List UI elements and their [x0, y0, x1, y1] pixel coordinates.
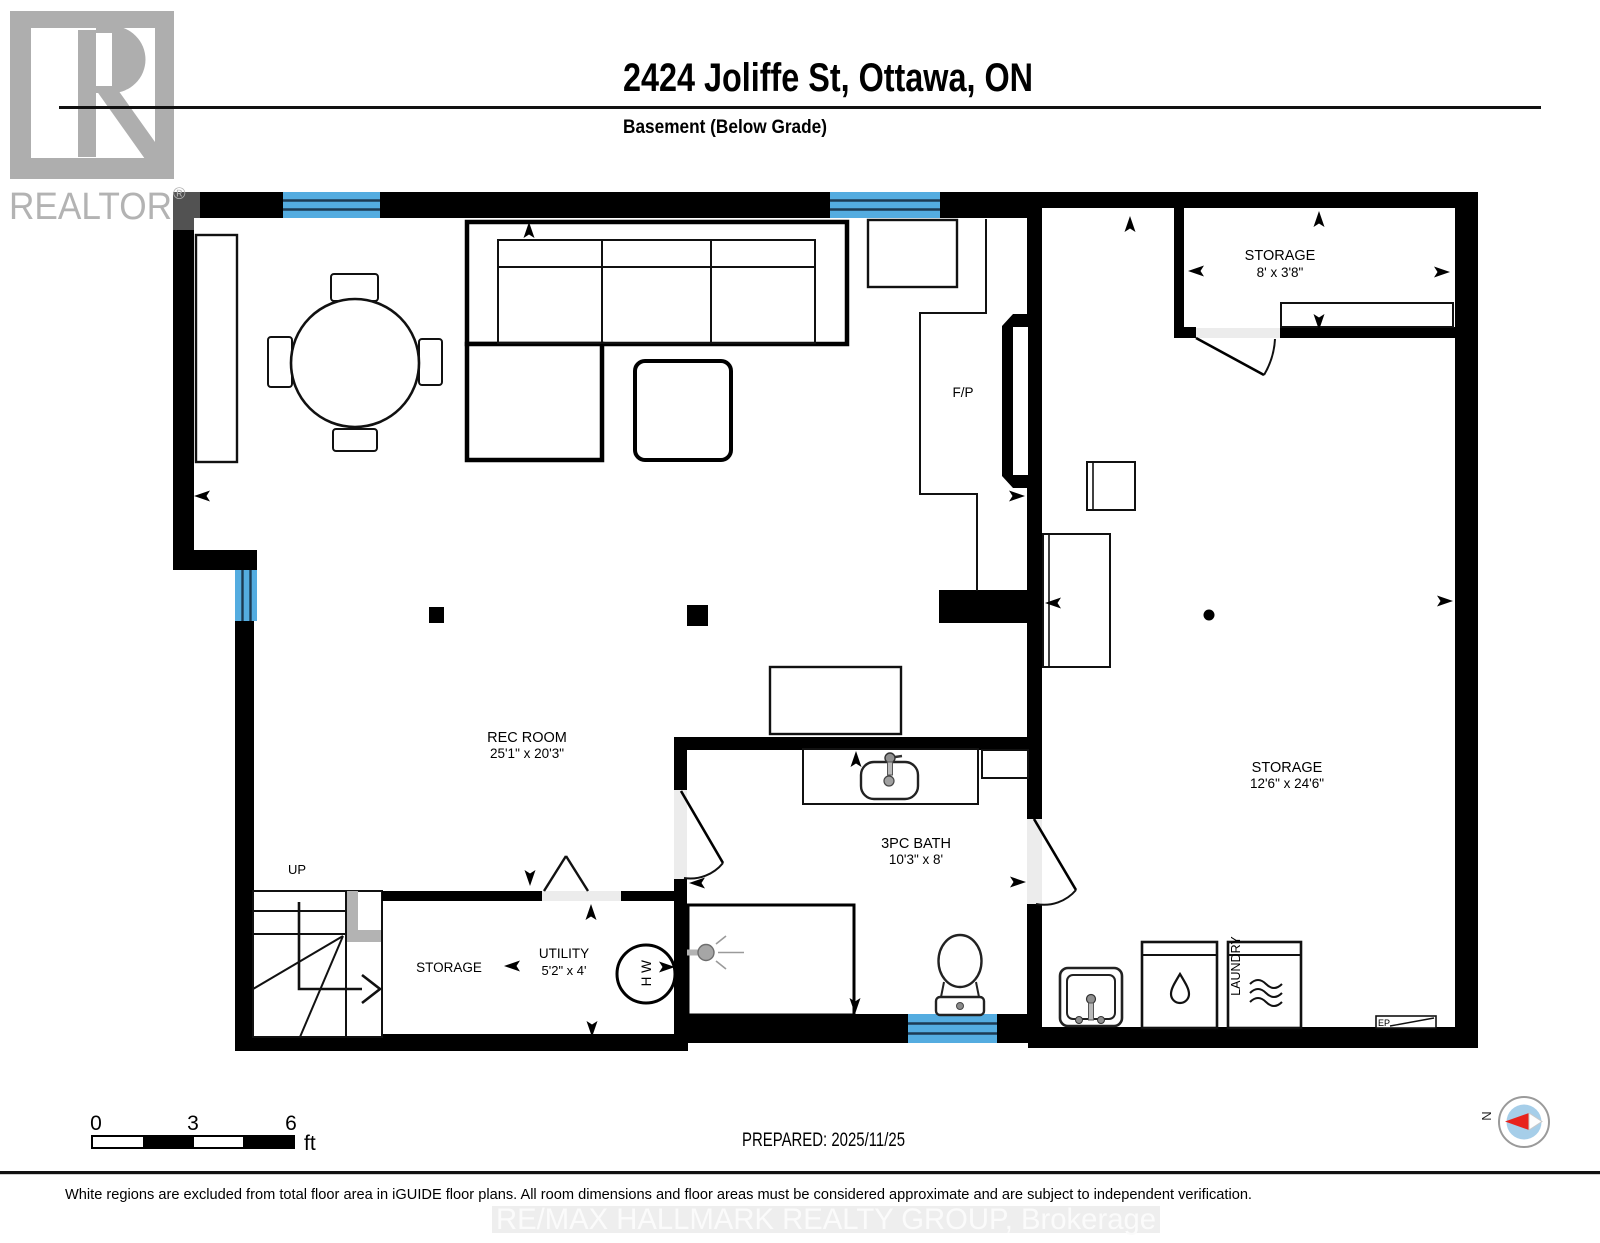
svg-text:H: H [639, 977, 654, 987]
svg-text:REC ROOM: REC ROOM [487, 730, 567, 746]
svg-text:ft: ft [304, 1132, 316, 1155]
svg-text:0: 0 [90, 1112, 102, 1135]
svg-text:LAUNDRY: LAUNDRY [1229, 936, 1243, 996]
svg-text:EP: EP [1378, 1018, 1390, 1028]
svg-text:3: 3 [187, 1112, 199, 1135]
svg-text:RE/MAX HALLMARK REALTY GROUP,: RE/MAX HALLMARK REALTY GROUP, Brokerage [496, 1203, 1156, 1236]
svg-text:W: W [639, 960, 654, 973]
svg-text:STORAGE: STORAGE [1252, 760, 1323, 776]
svg-text:REALTOR: REALTOR [9, 186, 172, 228]
svg-text:6: 6 [285, 1112, 297, 1135]
svg-text:N: N [1479, 1111, 1494, 1120]
svg-text:UTILITY: UTILITY [539, 946, 589, 961]
svg-text:12'6" x 24'6": 12'6" x 24'6" [1250, 776, 1324, 791]
svg-text:25'1" x 20'3": 25'1" x 20'3" [490, 746, 564, 761]
svg-text:5'2" x 4': 5'2" x 4' [542, 963, 587, 978]
svg-text:10'3" x 8': 10'3" x 8' [889, 852, 943, 867]
svg-text:STORAGE: STORAGE [416, 960, 482, 975]
svg-text:2424 Joliffe St, Ottawa, ON: 2424 Joliffe St, Ottawa, ON [623, 56, 1033, 100]
svg-text:PREPARED: 2025/11/25: PREPARED: 2025/11/25 [742, 1130, 905, 1151]
svg-text:®: ® [173, 184, 186, 203]
svg-text:F/P: F/P [952, 385, 973, 400]
svg-text:STORAGE: STORAGE [1245, 248, 1316, 264]
svg-text:White regions are excluded fro: White regions are excluded from total fl… [65, 1186, 1252, 1203]
svg-text:3PC BATH: 3PC BATH [881, 836, 951, 852]
svg-text:UP: UP [288, 862, 306, 877]
svg-text:8' x 3'8": 8' x 3'8" [1257, 265, 1304, 280]
svg-text:Basement (Below Grade): Basement (Below Grade) [623, 116, 827, 138]
